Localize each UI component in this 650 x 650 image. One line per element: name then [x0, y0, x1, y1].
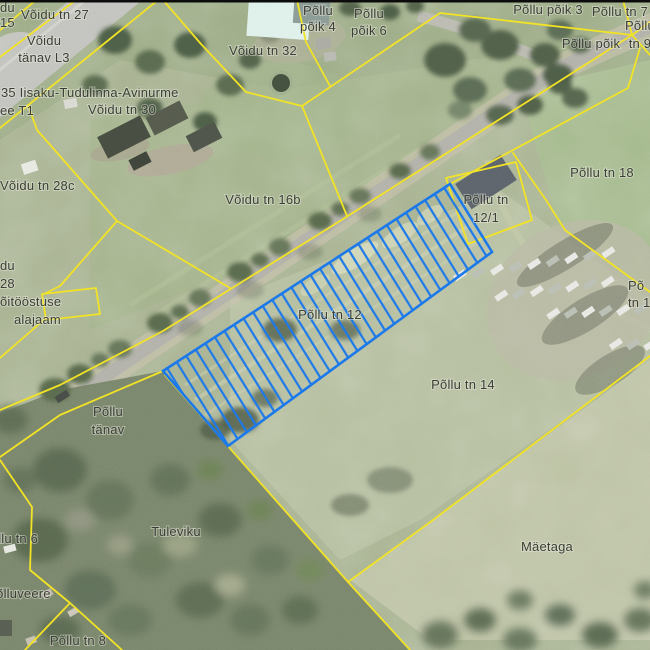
map-label-voidu-tn-27: Võidu tn 27 [21, 7, 89, 22]
map-label-pollu-tn-8: Põllu tn 8 [50, 633, 106, 648]
map-label-tuleviku: Tuleviku [151, 524, 201, 539]
map-label-pollu-poik-4: Põllupõik 4 [300, 3, 336, 34]
map-label-edge-cut-28: 28 [0, 276, 15, 291]
map-label-maetaga: Mäetaga [521, 539, 574, 554]
map-label-edge-cut-du: du [0, 258, 15, 273]
map-label-voidu-tn-30: Võidu tn 30 [88, 102, 156, 117]
map-label-pollu-tn-7: Põllu tn 7 [592, 4, 648, 19]
top-border [0, 0, 650, 3]
map-label-alajaam-line2: alajaam [14, 312, 61, 327]
map-label-pollu-tn-18: Põllu tn 18 [570, 165, 634, 180]
map-canvas[interactable]: du15Võidu tn 27Võidutänav L335 Iisaku-Tu… [0, 0, 650, 650]
map-label-pollu-tn-6: Põllu tn 6 [0, 531, 38, 546]
map-label-alajaam-line1: õitööstuse [0, 294, 61, 309]
map-label-voidu-tn-32: Võidu tn 32 [229, 43, 297, 58]
map-label-road-35-line1: 35 Iisaku-Tudulinna-Avinurme [1, 85, 179, 100]
map-label-voidu-tn-28c: Võidu tn 28c [0, 178, 75, 193]
map-label-polluveere: Põlluveere [0, 586, 51, 601]
map-label-pollu-tn-14: Põllu tn 14 [431, 377, 495, 392]
map-label-pollu-poik-3: Põllu põik 3 [513, 2, 583, 17]
map-label-pollu-tn-12: Põllu tn 12 [298, 307, 362, 322]
map-label-road-35-line2: ee T1 [0, 103, 34, 118]
map-label-pollu-poik: Põllu põik [562, 36, 621, 51]
map-label-corner-cut-line2: 15 [0, 15, 15, 30]
map-label-voidu-tn-16b: Võidu tn 16b [225, 192, 300, 207]
